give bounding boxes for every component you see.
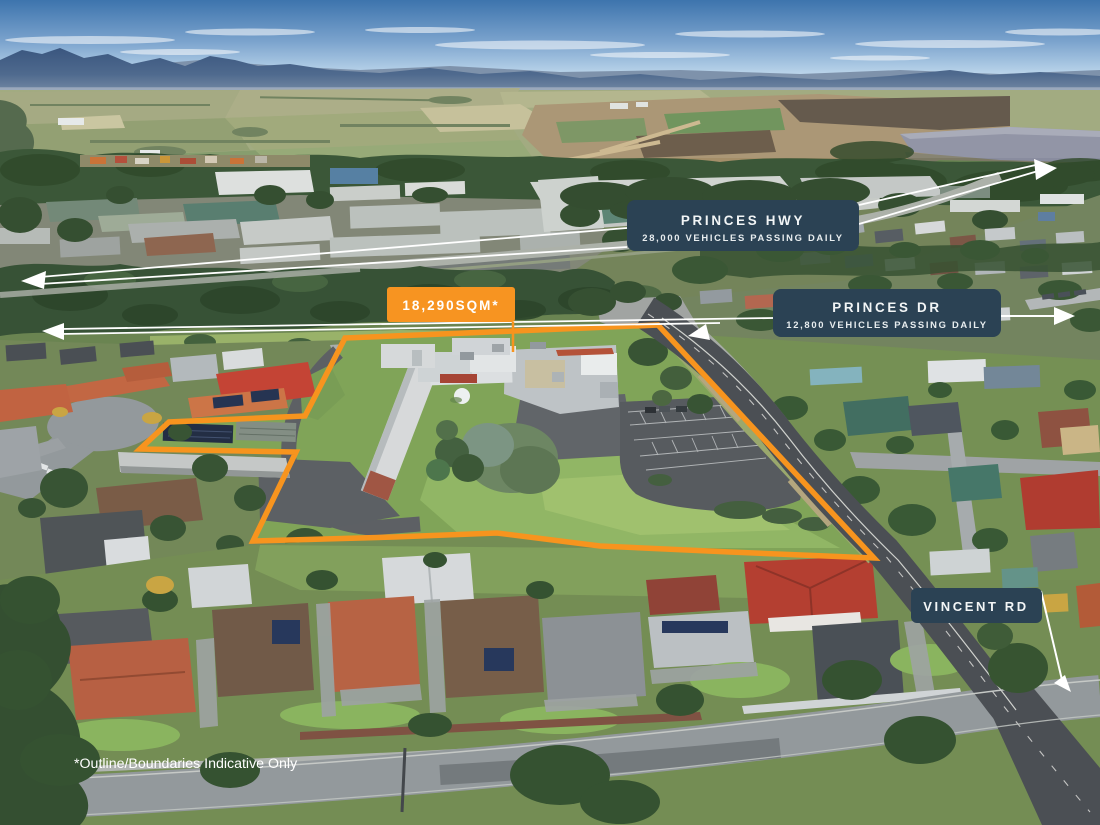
svg-text:12,800 VEHICLES PASSING DAILY: 12,800 VEHICLES PASSING DAILY (786, 319, 987, 330)
svg-text:18,290SQM*: 18,290SQM* (402, 298, 499, 313)
svg-text:*Outline/Boundaries Indicative: *Outline/Boundaries Indicative Only (74, 756, 298, 772)
svg-text:28,000 VEHICLES PASSING DAILY: 28,000 VEHICLES PASSING DAILY (642, 232, 843, 243)
svg-text:PRINCES DR: PRINCES DR (832, 300, 942, 315)
svg-text:VINCENT RD: VINCENT RD (923, 599, 1028, 614)
svg-text:PRINCES HWY: PRINCES HWY (681, 213, 805, 228)
